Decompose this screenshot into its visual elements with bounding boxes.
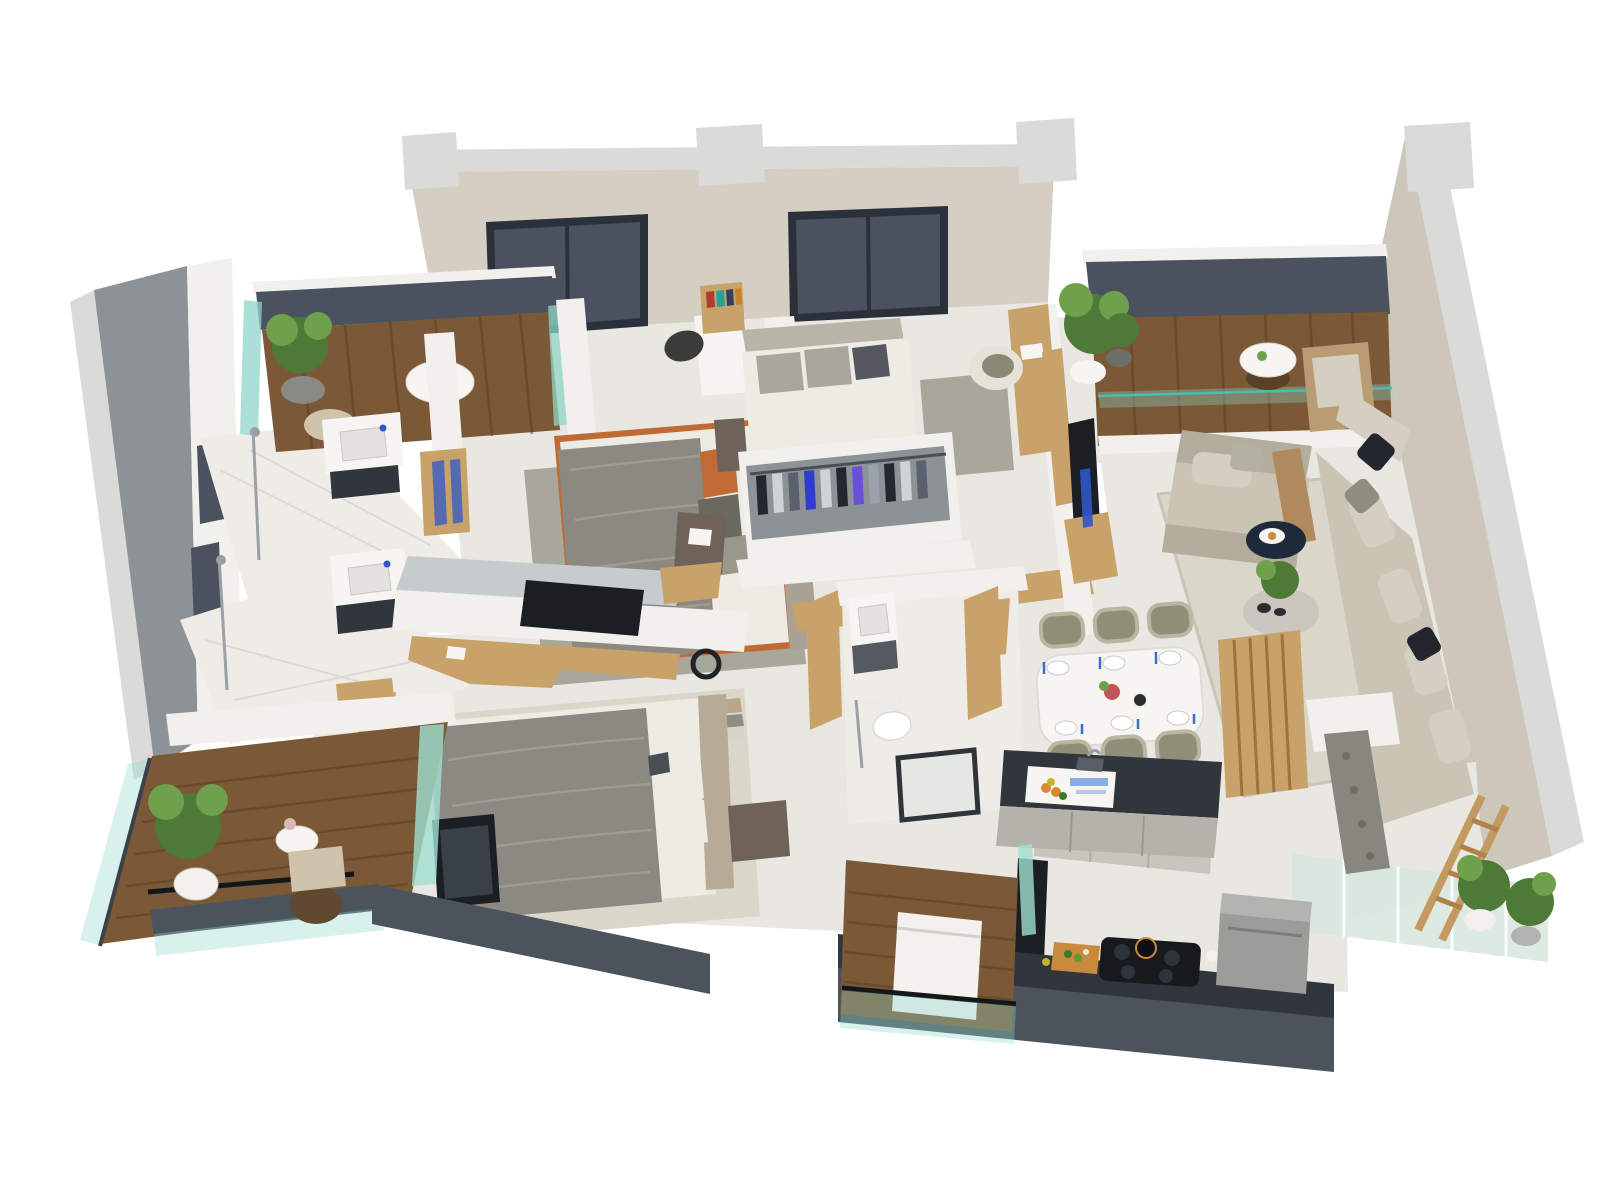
- wall-pillar-3: [1016, 118, 1077, 184]
- fruit-graphic-panel: [1025, 766, 1116, 808]
- wood-half-wall-west: [806, 590, 842, 730]
- plant-foliage: [196, 784, 228, 816]
- round-table: [1240, 343, 1296, 377]
- dark-pillow: [852, 344, 890, 380]
- tray-pastry: [1268, 532, 1276, 540]
- chair-cushion: [288, 846, 346, 892]
- pillow: [656, 800, 708, 848]
- faucet: [380, 425, 387, 432]
- plant-foliage: [1059, 283, 1093, 317]
- dried-flowers: [284, 818, 296, 830]
- tv-inner: [440, 825, 493, 899]
- wicker-barrel-chair: [290, 886, 342, 924]
- console-book: [1020, 343, 1044, 360]
- vase: [1274, 608, 1286, 616]
- vanity-basin: [340, 427, 387, 461]
- door-jamb: [976, 598, 1010, 658]
- dark-pillow: [648, 752, 670, 776]
- cup: [1206, 950, 1218, 962]
- kettle: [1134, 694, 1146, 706]
- nightstand: [728, 800, 790, 862]
- window-2-mullion: [868, 217, 869, 310]
- nightstand-paper: [688, 528, 712, 546]
- plant-pot: [281, 376, 325, 404]
- wall-pillar-2: [696, 124, 765, 186]
- wood-slat-screen: [1218, 630, 1308, 798]
- wall-pillar-4: [1404, 122, 1474, 192]
- balcony-glazing: [1086, 256, 1390, 320]
- shower-head: [250, 427, 260, 437]
- floorplan-svg: Photorealistic 3D isometric dollhouse fl…: [0, 0, 1600, 1200]
- vase: [1257, 603, 1271, 613]
- shower-glass: [898, 750, 978, 820]
- table-plant: [1256, 560, 1276, 580]
- plant-pot-small: [1106, 349, 1132, 367]
- shower-head: [216, 555, 226, 565]
- utility-balcony: [840, 860, 1018, 1044]
- console-card: [446, 646, 466, 660]
- pillow: [756, 352, 804, 394]
- plant-foliage: [266, 314, 298, 346]
- plant-pot: [174, 868, 218, 900]
- plant-pot: [1464, 909, 1496, 931]
- plant-foliage: [1532, 872, 1556, 896]
- pillow: [804, 346, 852, 388]
- balcony-glass-left: [240, 300, 262, 436]
- master-balcony: [240, 266, 572, 452]
- floorplan-render: Photorealistic 3D isometric dollhouse fl…: [0, 0, 1600, 1200]
- plant-pot: [1511, 926, 1541, 946]
- island-sink: [1076, 757, 1104, 772]
- plant-foliage: [1457, 855, 1483, 881]
- wall-pillar-1: [402, 132, 459, 190]
- table-decor: [1257, 351, 1267, 361]
- vanity-basin: [348, 563, 391, 595]
- faucet: [384, 561, 391, 568]
- dining-area: [1035, 603, 1205, 776]
- plant-pot: [1070, 360, 1106, 384]
- door-jamb: [660, 562, 722, 604]
- sink-basin: [858, 604, 889, 636]
- plant-foliage: [304, 312, 332, 340]
- flower-centerpiece: [1099, 681, 1109, 691]
- sink-base: [852, 640, 898, 674]
- plant-foliage: [1105, 313, 1139, 347]
- appliance-body: [1216, 913, 1310, 994]
- plant-foliage: [148, 784, 184, 820]
- chair-cushion: [982, 354, 1014, 378]
